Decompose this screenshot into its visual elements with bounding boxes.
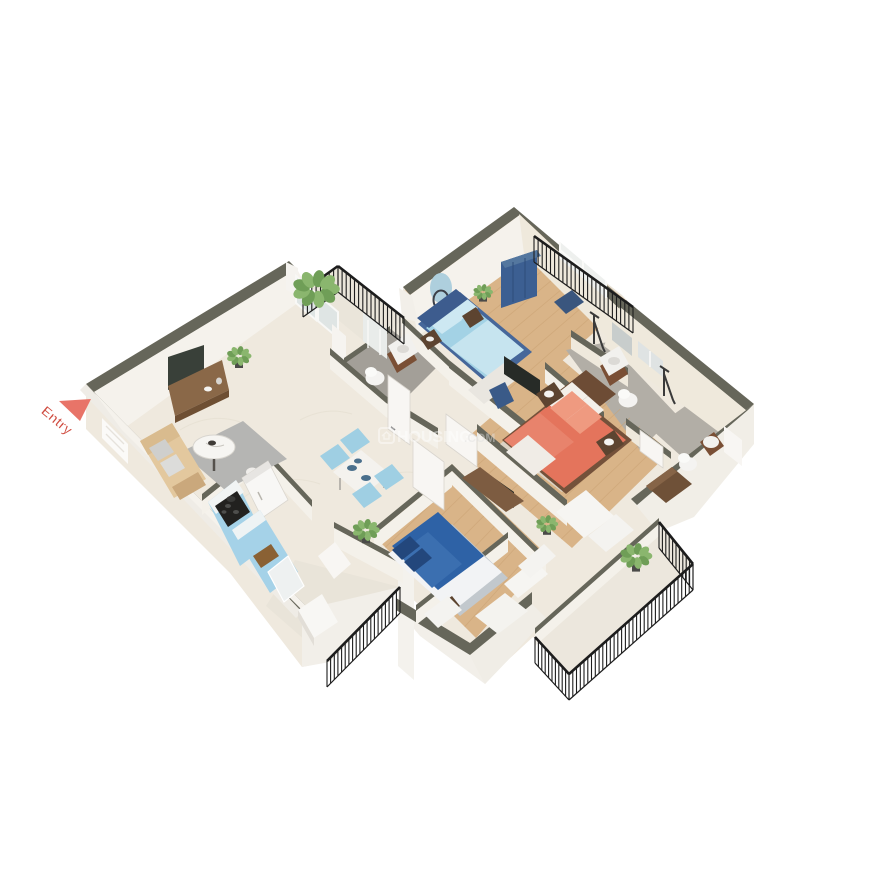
svg-text:.COM: .COM <box>464 431 495 445</box>
svg-text:HOUSING: HOUSING <box>397 429 472 446</box>
